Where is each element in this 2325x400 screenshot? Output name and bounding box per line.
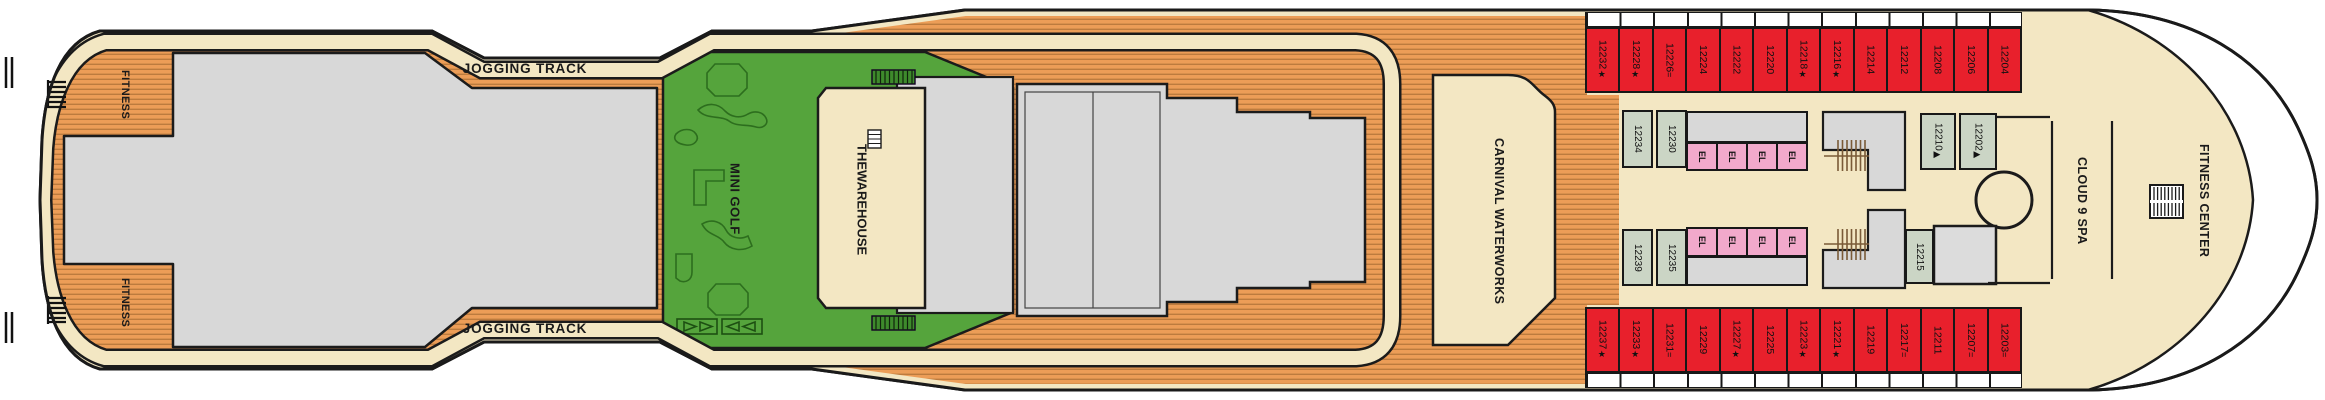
label-carnival-waterworks: CARNIVAL WATERWORKS: [1488, 98, 1510, 344]
cabin[interactable]: 12237★: [1587, 309, 1618, 371]
elevator-lobby-top: [1686, 111, 1808, 143]
cabin-12235[interactable]: 12235: [1656, 229, 1687, 286]
cabin[interactable]: 12222: [1721, 29, 1752, 91]
label-fitness-top: FITNESS: [114, 62, 136, 128]
cabin-row-bottom: 12237★ 12233★ 12231= 12229 12227★ 12225 …: [1585, 307, 2022, 373]
balcony-strip-top: [1585, 12, 2022, 27]
elevator-lobby-bottom: [1686, 256, 1808, 286]
label-mini-golf: MINI GOLF: [724, 152, 746, 246]
balcony-strip-bottom: [1585, 373, 2022, 388]
cabin[interactable]: 12217=: [1888, 309, 1919, 371]
elevator[interactable]: EL: [1718, 229, 1746, 255]
cabin[interactable]: 12232★: [1587, 29, 1618, 91]
cabin-12234[interactable]: 12234: [1622, 110, 1653, 168]
cabin[interactable]: 12229: [1687, 309, 1718, 371]
wood-deck-corridor-stub: [1583, 95, 1619, 305]
label-cloud-9-spa: CLOUD 9 SPA: [2070, 132, 2094, 270]
cabin[interactable]: 12227★: [1721, 309, 1752, 371]
label-warehouse: THEWAREHOUSE: [842, 100, 882, 300]
cabin[interactable]: 12226=: [1654, 29, 1685, 91]
cabin[interactable]: 12221★: [1821, 309, 1852, 371]
spiral-stair-circle: [1976, 172, 2032, 228]
elevator[interactable]: EL: [1778, 229, 1806, 255]
elevator[interactable]: EL: [1778, 144, 1806, 169]
fitness-stairs-icon[interactable]: [2150, 185, 2183, 218]
cabin[interactable]: 12203=: [1989, 309, 2020, 371]
deck-plan: FITNESS FITNESS JOGGING TRACK JOGGING TR…: [0, 0, 2325, 400]
elevator[interactable]: EL: [1718, 144, 1746, 169]
cabin-12239[interactable]: 12239: [1622, 229, 1653, 286]
cabin[interactable]: 12233★: [1620, 309, 1651, 371]
warehouse-stairs-icon[interactable]: [872, 70, 915, 84]
label-warehouse-line1: THE: [854, 144, 871, 170]
cabin[interactable]: 12216★: [1821, 29, 1852, 91]
interior-room: [1934, 226, 1996, 284]
cabin[interactable]: 12214: [1855, 29, 1886, 91]
cabin[interactable]: 12211: [1922, 309, 1953, 371]
cabin[interactable]: 12219: [1855, 309, 1886, 371]
cabin[interactable]: 12220: [1754, 29, 1785, 91]
elevator[interactable]: EL: [1748, 229, 1776, 255]
label-fitness-center: FITNESS CENTER: [2192, 125, 2216, 277]
elevator-bank-top: ELELELEL: [1686, 142, 1808, 171]
cabin-12210[interactable]: 12210▶: [1920, 113, 1956, 170]
elevator[interactable]: EL: [1688, 229, 1716, 255]
label-jogging-track-bottom: JOGGING TRACK: [430, 319, 620, 337]
elevator[interactable]: EL: [1748, 144, 1776, 169]
warehouse-stairs-icon[interactable]: [872, 316, 915, 330]
label-warehouse-line2: WAREHOUSE: [854, 170, 871, 255]
cabin[interactable]: 12212: [1888, 29, 1919, 91]
cabin[interactable]: 12223★: [1788, 309, 1819, 371]
cabin[interactable]: 12218★: [1788, 29, 1819, 91]
elevator-bank-bottom: ELELELEL: [1686, 227, 1808, 257]
cabin[interactable]: 12231=: [1654, 309, 1685, 371]
cabin-12202[interactable]: 12202▶: [1959, 113, 1997, 170]
cabin-12230[interactable]: 12230: [1656, 110, 1687, 168]
cabin[interactable]: 12206: [1955, 29, 1986, 91]
elevator[interactable]: EL: [1688, 144, 1716, 169]
label-jogging-track-top: JOGGING TRACK: [430, 59, 620, 77]
cabin-row-top: 12232★ 12228★ 12226= 12224 12222 12220 1…: [1585, 27, 2022, 93]
label-fitness-bottom: FITNESS: [114, 270, 136, 336]
cabin[interactable]: 12228★: [1620, 29, 1651, 91]
cabin[interactable]: 12207=: [1955, 309, 1986, 371]
cabin[interactable]: 12208: [1922, 29, 1953, 91]
sports-platform: [1017, 84, 1365, 316]
cabin[interactable]: 12225: [1754, 309, 1785, 371]
cabin-12215[interactable]: 12215: [1905, 229, 1934, 284]
cabin[interactable]: 12224: [1687, 29, 1718, 91]
cabin[interactable]: 12204: [1989, 29, 2020, 91]
